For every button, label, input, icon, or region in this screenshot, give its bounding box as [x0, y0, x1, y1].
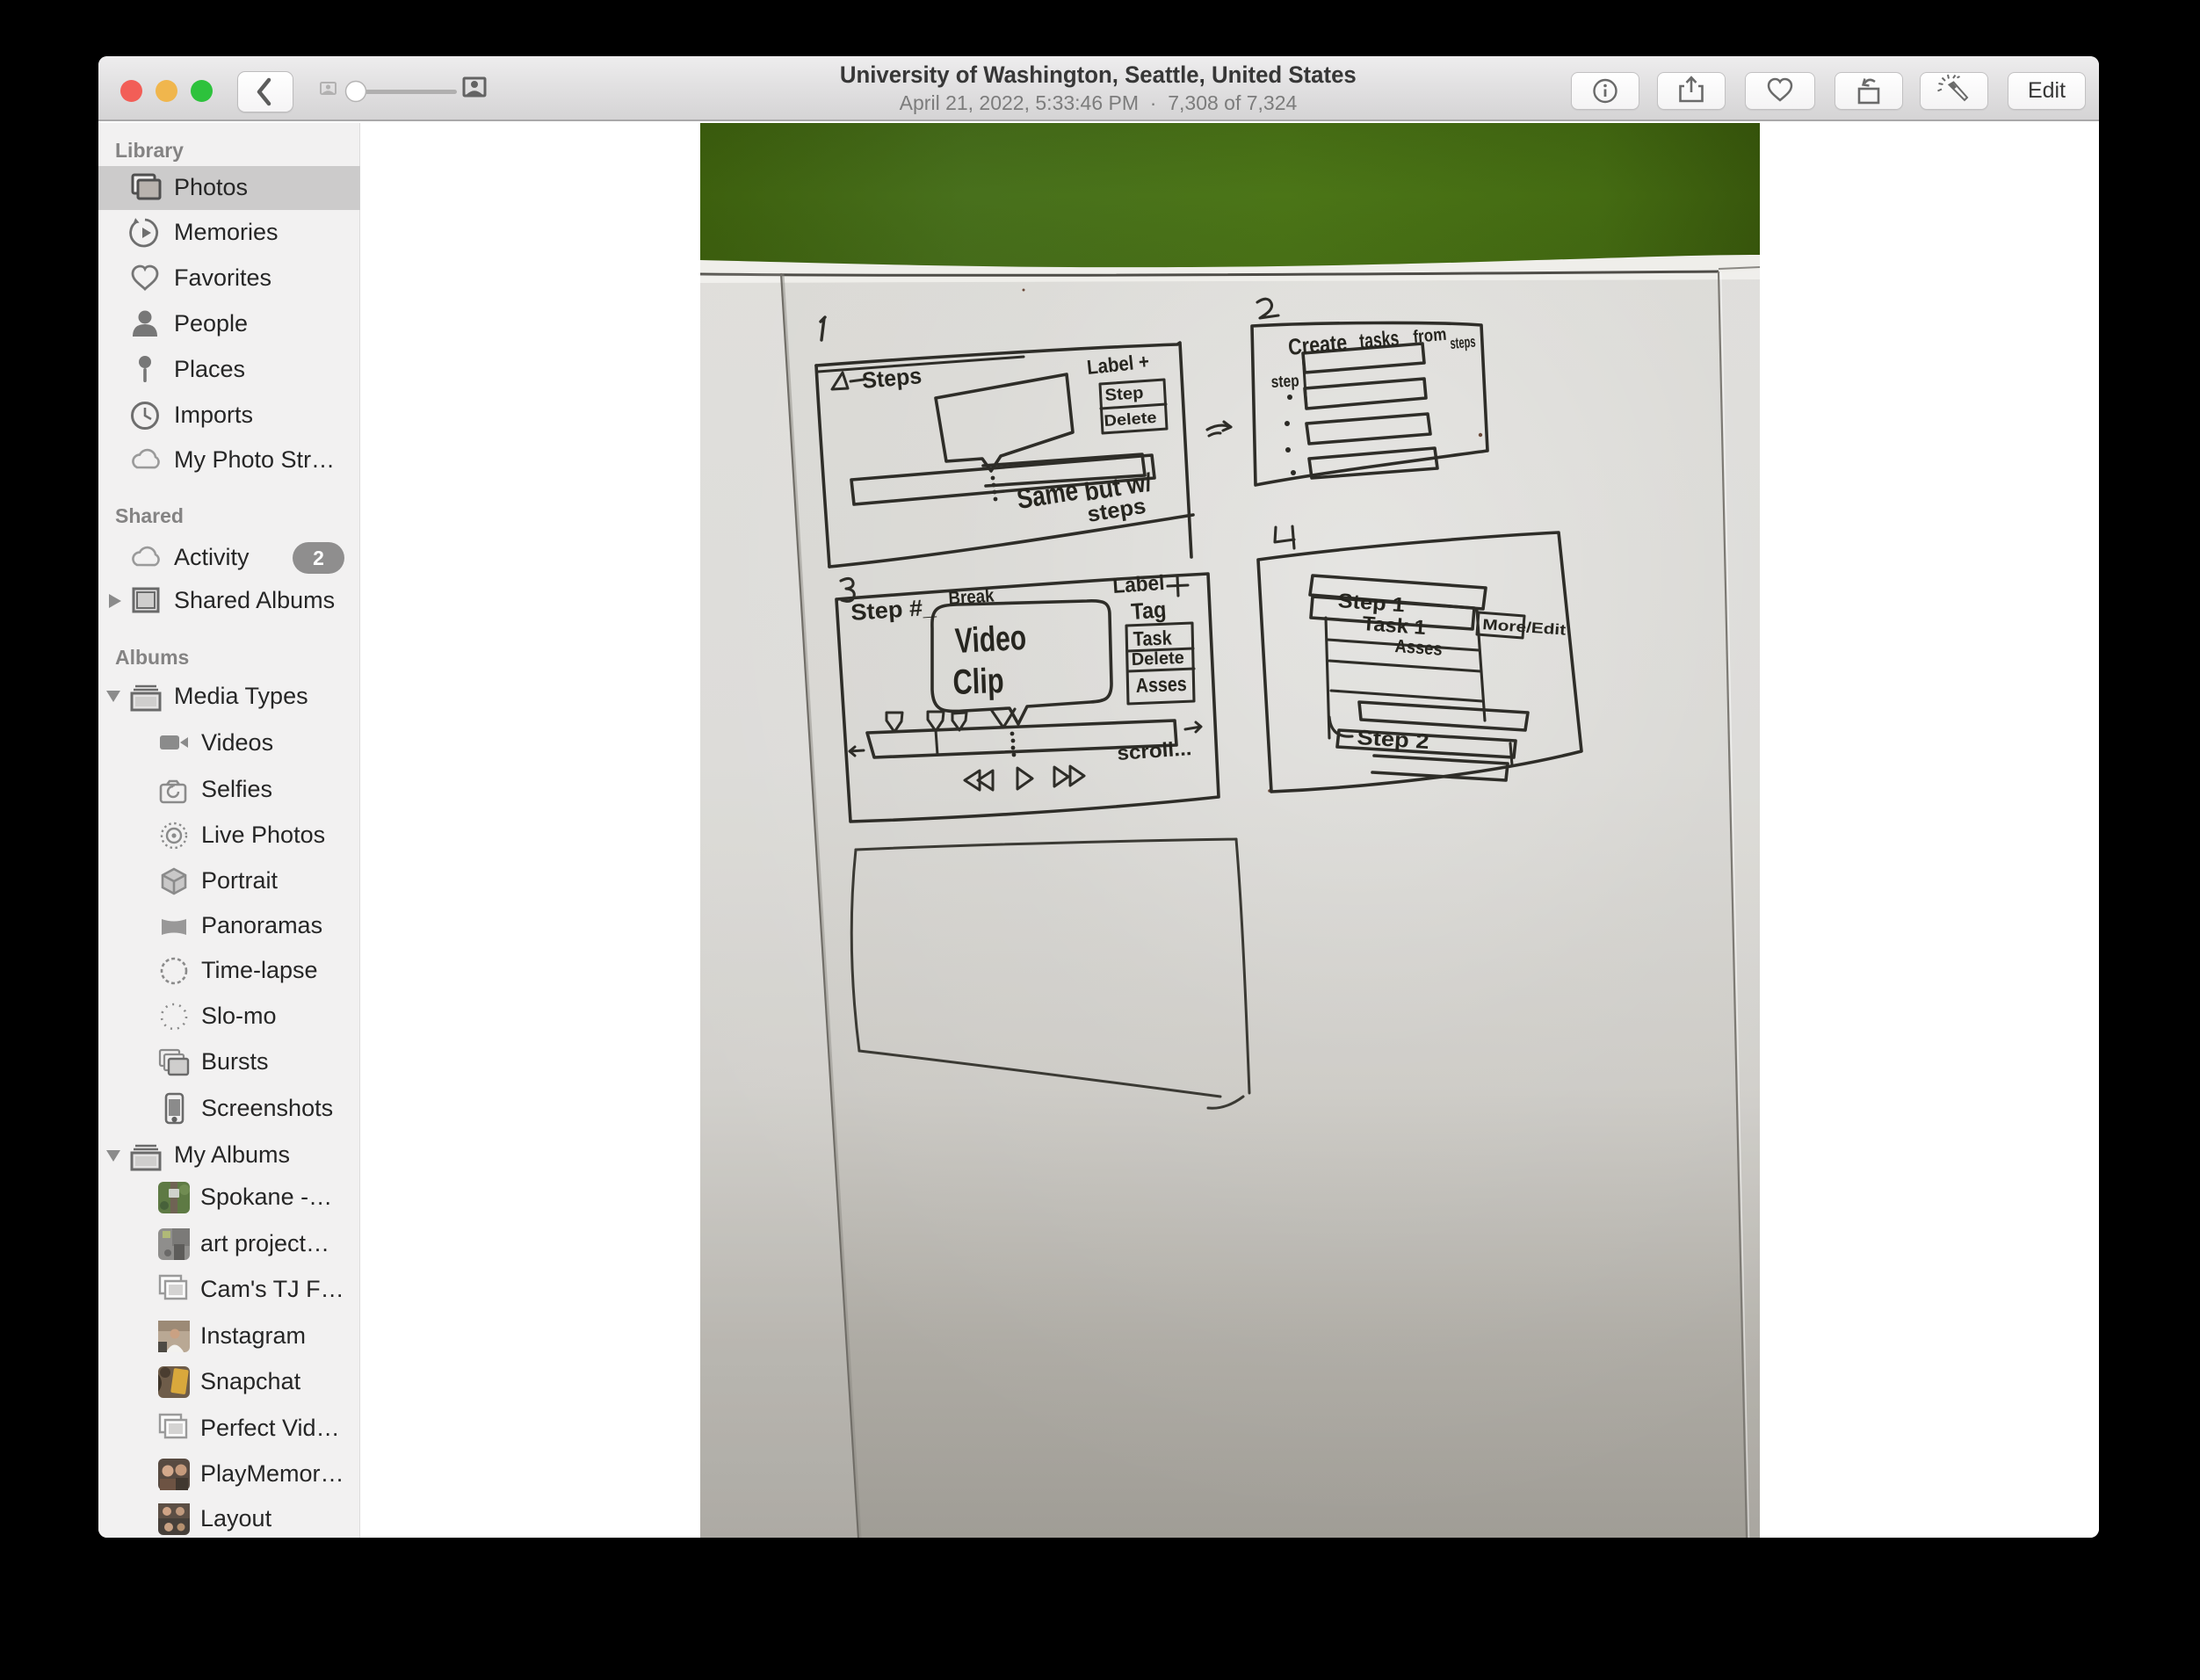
svg-text:tasks: tasks: [1358, 326, 1400, 354]
svg-text:Asses: Asses: [1394, 636, 1443, 660]
svg-text:Step: Step: [1104, 384, 1144, 405]
svg-text:Break: Break: [948, 585, 995, 609]
svg-text:Task: Task: [1133, 626, 1172, 650]
svg-text:Steps: Steps: [861, 362, 923, 394]
svg-text:Delete: Delete: [1104, 409, 1157, 430]
svg-text:Create: Create: [1287, 329, 1348, 360]
svg-text:Step 2: Step 2: [1357, 726, 1429, 754]
svg-text:steps: steps: [1450, 333, 1477, 352]
svg-text:Label: Label: [1112, 571, 1166, 598]
svg-text:Video: Video: [954, 619, 1027, 661]
svg-text:step: step: [1270, 372, 1299, 392]
svg-text:Tag: Tag: [1130, 596, 1167, 625]
svg-text:Clip: Clip: [952, 662, 1005, 702]
svg-text:Asses: Asses: [1135, 672, 1187, 697]
svg-text:from: from: [1413, 325, 1448, 347]
svg-text:Delete: Delete: [1131, 648, 1184, 670]
svg-text:Task 1: Task 1: [1362, 612, 1427, 639]
